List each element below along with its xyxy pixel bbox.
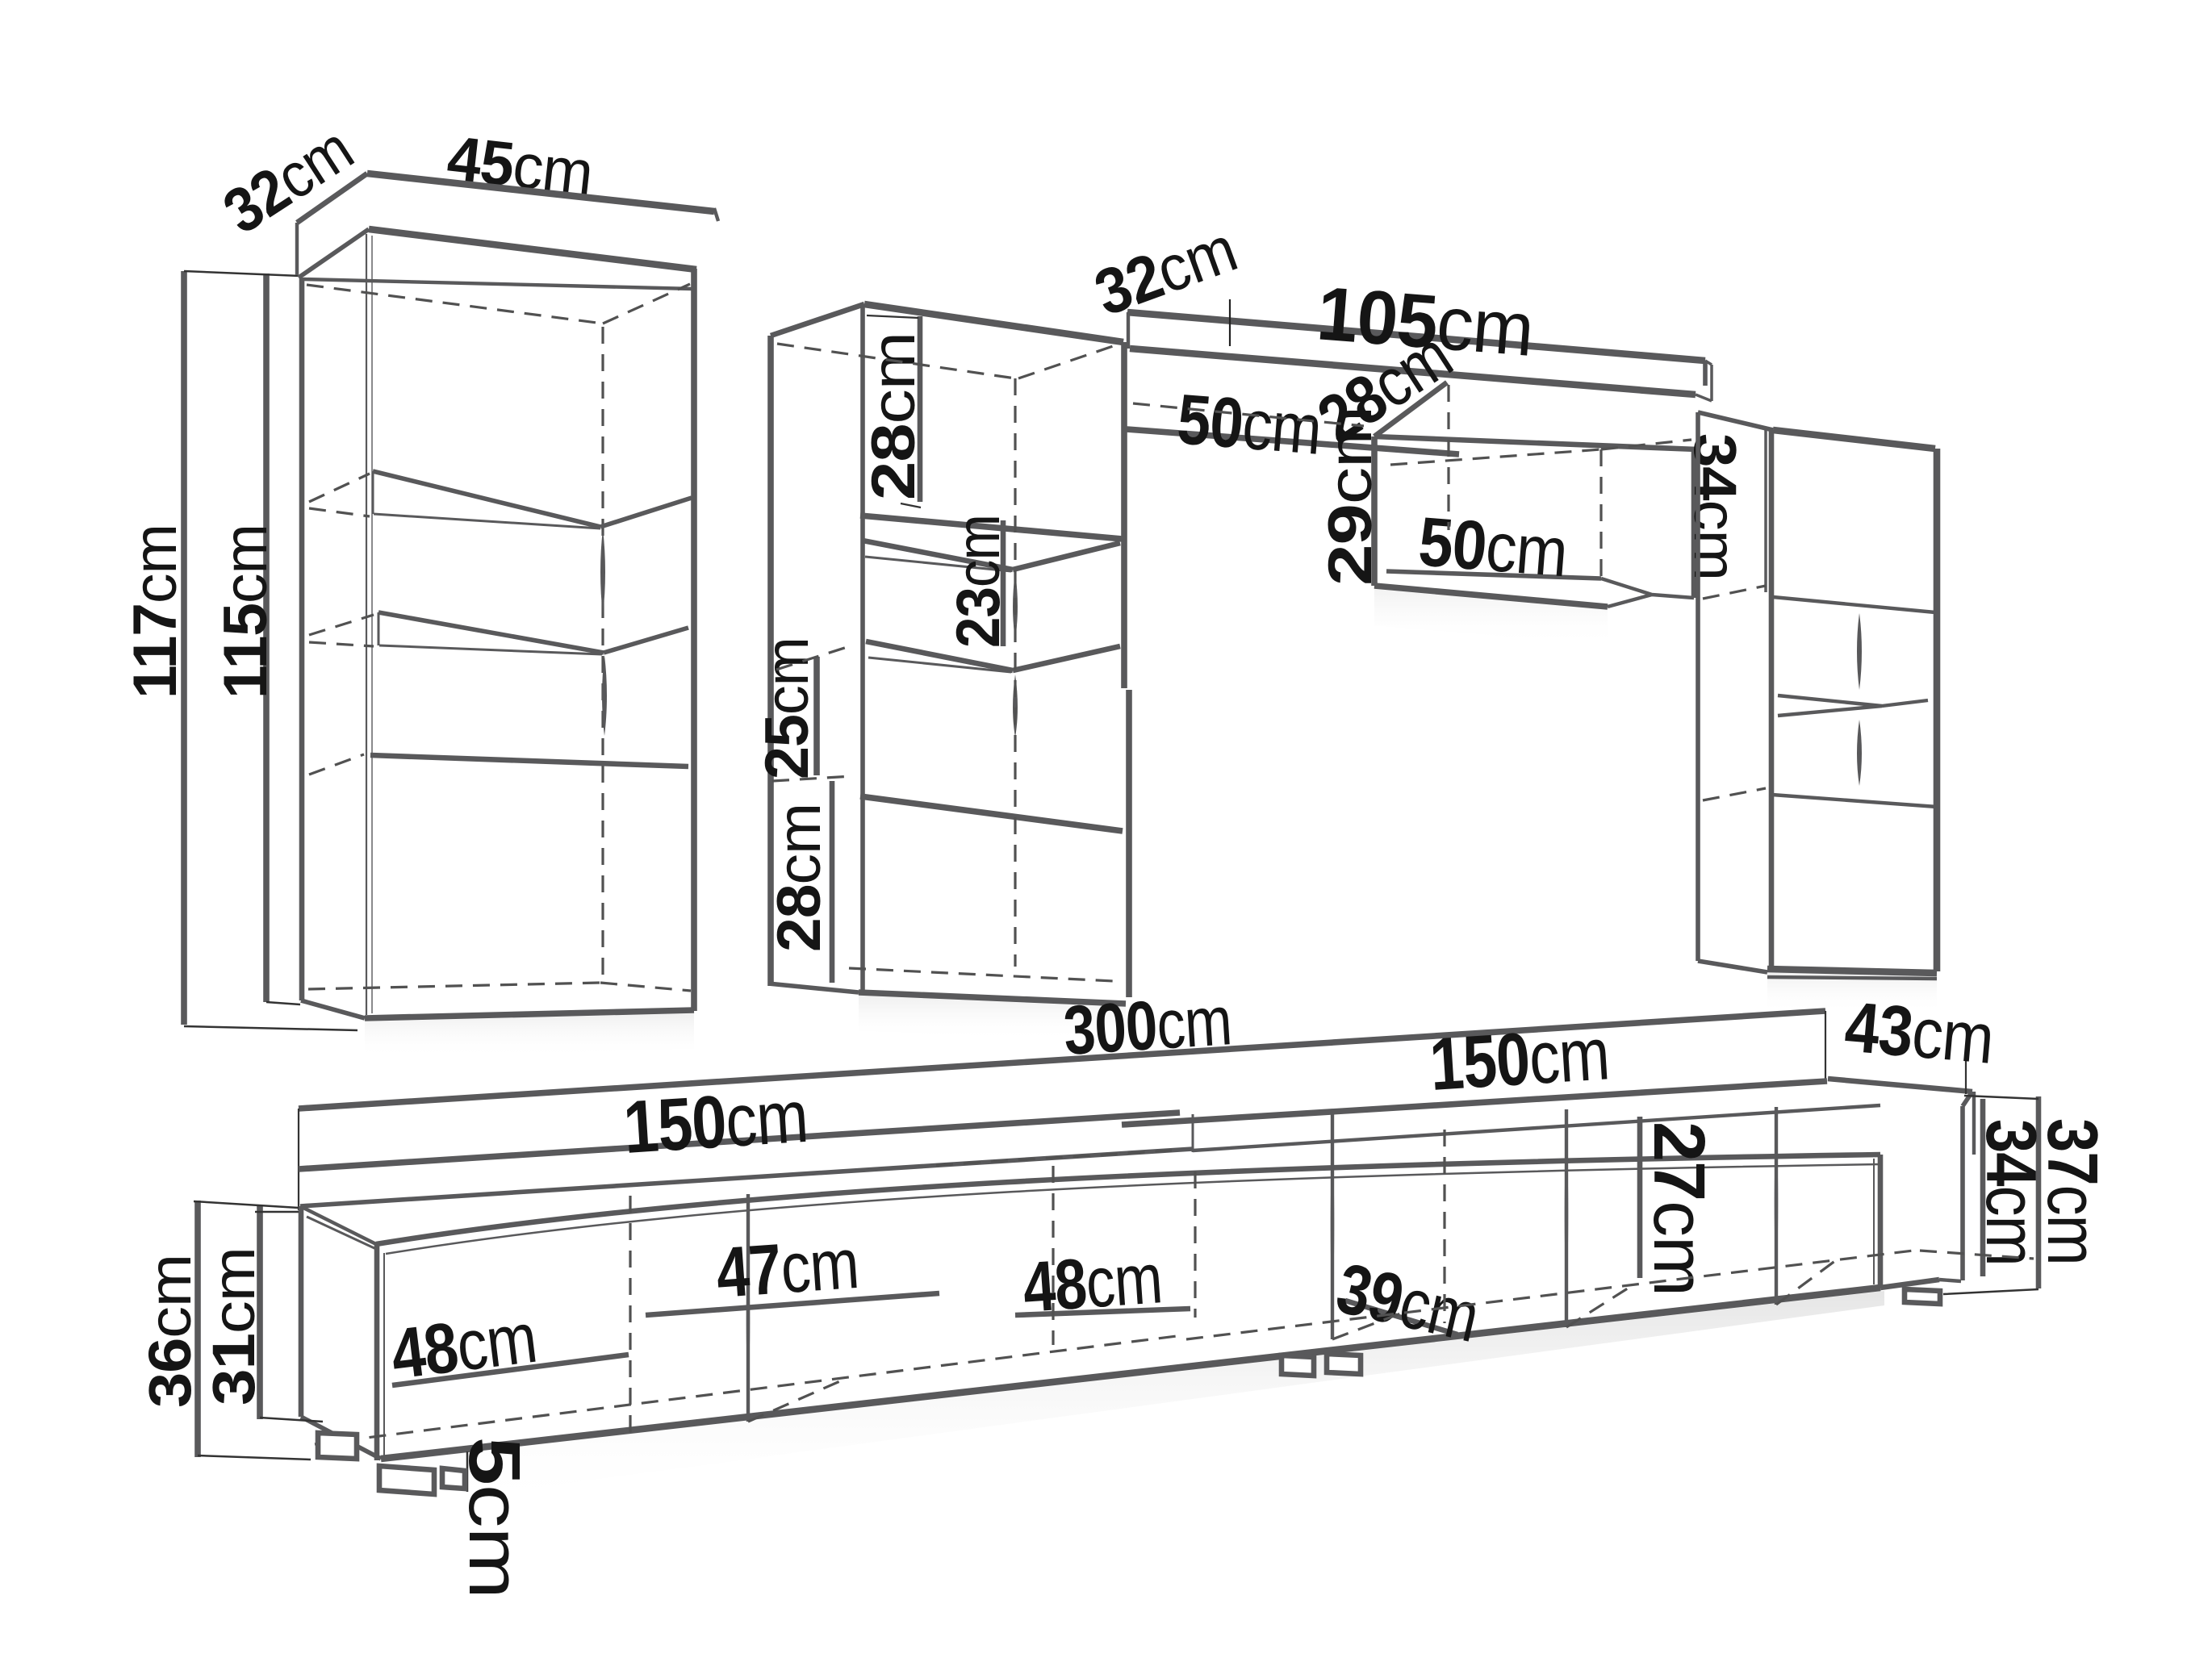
svg-text:117cm: 117cm (121, 524, 190, 699)
svg-text:50cm: 50cm (1416, 503, 1570, 591)
svg-text:23cm: 23cm (944, 515, 1013, 648)
svg-text:50cm: 50cm (1175, 378, 1324, 470)
svg-text:34cm: 34cm (1972, 1119, 2051, 1266)
svg-text:300cm: 300cm (1061, 982, 1234, 1070)
svg-text:150cm: 150cm (621, 1075, 810, 1169)
svg-text:34cm: 34cm (1682, 433, 1749, 580)
svg-text:29cm: 29cm (1316, 407, 1385, 586)
svg-text:150cm: 150cm (1428, 1013, 1612, 1106)
svg-text:115cm: 115cm (211, 524, 280, 699)
svg-text:48cm: 48cm (1020, 1238, 1164, 1327)
svg-text:36cm: 36cm (136, 1255, 203, 1408)
svg-text:5cm: 5cm (454, 1437, 534, 1598)
svg-text:47cm: 47cm (713, 1223, 860, 1313)
svg-text:27cm: 27cm (1638, 1121, 1719, 1296)
svg-text:43cm: 43cm (1842, 986, 1997, 1079)
svg-text:28cm: 28cm (765, 804, 834, 952)
